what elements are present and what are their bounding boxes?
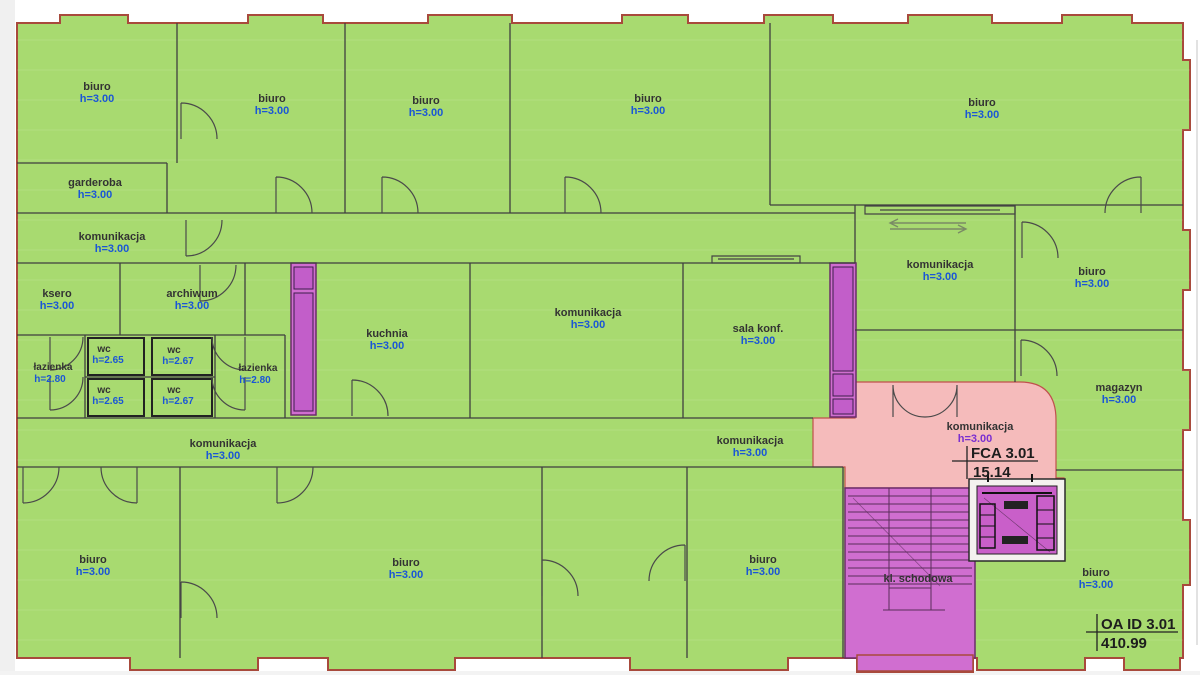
svg-text:h=3.00: h=3.00: [741, 335, 776, 347]
fca-value: 15.14: [973, 464, 1011, 481]
svg-text:biuro: biuro: [1078, 266, 1106, 278]
room-label-biuro-1: biuro h=3.00: [80, 81, 115, 105]
svg-text:h=3.00: h=3.00: [95, 243, 130, 255]
svg-text:biuro: biuro: [968, 97, 996, 109]
oa-value: 410.99: [1101, 635, 1147, 652]
room-label-biuro-5: biuro h=3.00: [965, 97, 1000, 121]
room-label-ksero: ksero h=3.00: [40, 288, 75, 312]
floor-plan-drawing: biuro h=3.00 biuro h=3.00 biuro h=3.00 b…: [0, 0, 1200, 675]
svg-text:łazienka: łazienka: [34, 362, 73, 373]
svg-text:komunikacja: komunikacja: [907, 259, 975, 271]
svg-text:h=2.80: h=2.80: [34, 374, 66, 385]
svg-text:h=3.00: h=3.00: [76, 566, 111, 578]
svg-text:h=3.00: h=3.00: [40, 300, 75, 312]
svg-text:wc: wc: [96, 385, 111, 396]
svg-text:h=3.00: h=3.00: [631, 105, 666, 117]
svg-text:biuro: biuro: [79, 554, 107, 566]
room-label-magazyn: magazyn h=3.00: [1095, 382, 1142, 406]
svg-text:kl. schodowa: kl. schodowa: [883, 573, 953, 585]
svg-text:h=3.00: h=3.00: [571, 319, 606, 331]
svg-text:komunikacja: komunikacja: [555, 307, 623, 319]
svg-text:h=3.00: h=3.00: [80, 93, 115, 105]
svg-text:komunikacja: komunikacja: [190, 438, 258, 450]
svg-text:h=3.00: h=3.00: [370, 340, 405, 352]
svg-text:biuro: biuro: [1082, 567, 1110, 579]
svg-text:h=3.00: h=3.00: [409, 107, 444, 119]
svg-text:komunikacja: komunikacja: [717, 435, 785, 447]
svg-text:biuro: biuro: [392, 557, 420, 569]
svg-text:garderoba: garderoba: [68, 177, 123, 189]
svg-text:h=3.00: h=3.00: [175, 300, 210, 312]
room-label-kuchnia: kuchnia h=3.00: [366, 328, 408, 352]
svg-text:h=3.00: h=3.00: [746, 566, 781, 578]
svg-text:sala konf.: sala konf.: [733, 323, 784, 335]
svg-text:wc: wc: [166, 345, 181, 356]
room-label-biuro-8: biuro h=3.00: [389, 557, 424, 581]
fca-title: FCA 3.01: [971, 445, 1035, 462]
svg-text:h=2.67: h=2.67: [162, 396, 194, 407]
room-label-biuro-7: biuro h=3.00: [76, 554, 111, 578]
svg-text:h=3.00: h=3.00: [1079, 579, 1114, 591]
svg-text:biuro: biuro: [634, 93, 662, 105]
room-label-biuro-6: biuro h=3.00: [1075, 266, 1110, 290]
svg-text:h=3.00: h=3.00: [1102, 394, 1137, 406]
svg-text:h=3.00: h=3.00: [78, 189, 113, 201]
svg-text:h=2.67: h=2.67: [162, 356, 194, 367]
page-bottom-margin: [0, 671, 1200, 675]
room-label-biuro-2: biuro h=3.00: [255, 93, 290, 117]
oa-title: OA ID 3.01: [1101, 616, 1175, 633]
svg-text:h=3.00: h=3.00: [389, 569, 424, 581]
svg-text:h=3.00: h=3.00: [923, 271, 958, 283]
shaft-left: [291, 263, 316, 415]
elevator-detail: [969, 474, 1065, 561]
svg-text:wc: wc: [166, 385, 181, 396]
svg-text:h=2.65: h=2.65: [92, 355, 124, 366]
svg-text:h=3.00: h=3.00: [958, 433, 993, 445]
room-label-klatka-schodowa: kl. schodowa: [883, 573, 953, 585]
svg-text:h=2.65: h=2.65: [92, 396, 124, 407]
svg-text:h=3.00: h=3.00: [255, 105, 290, 117]
svg-text:biuro: biuro: [83, 81, 111, 93]
svg-text:komunikacja: komunikacja: [79, 231, 147, 243]
page-left-margin: [0, 0, 15, 675]
svg-text:archiwum: archiwum: [166, 288, 218, 300]
room-label-biuro-4: biuro h=3.00: [631, 93, 666, 117]
svg-text:h=3.00: h=3.00: [965, 109, 1000, 121]
floor-plan-page: biuro h=3.00 biuro h=3.00 biuro h=3.00 b…: [0, 0, 1200, 675]
svg-text:biuro: biuro: [412, 95, 440, 107]
room-label-biuro-10: biuro h=3.00: [1079, 567, 1114, 591]
building-outline: [17, 15, 1190, 672]
svg-text:wc: wc: [96, 344, 111, 355]
svg-text:h=3.00: h=3.00: [1075, 278, 1110, 290]
svg-text:biuro: biuro: [258, 93, 286, 105]
svg-text:h=3.00: h=3.00: [733, 447, 768, 459]
svg-text:h=2.80: h=2.80: [239, 375, 271, 386]
svg-text:h=3.00: h=3.00: [206, 450, 241, 462]
room-label-biuro-9: biuro h=3.00: [746, 554, 781, 578]
svg-text:łazienka: łazienka: [239, 363, 278, 374]
svg-text:komunikacja: komunikacja: [947, 421, 1015, 433]
svg-text:magazyn: magazyn: [1095, 382, 1142, 394]
svg-text:biuro: biuro: [749, 554, 777, 566]
svg-text:kuchnia: kuchnia: [366, 328, 408, 340]
room-label-biuro-3: biuro h=3.00: [409, 95, 444, 119]
shaft-right: [830, 263, 856, 417]
svg-text:ksero: ksero: [42, 288, 72, 300]
